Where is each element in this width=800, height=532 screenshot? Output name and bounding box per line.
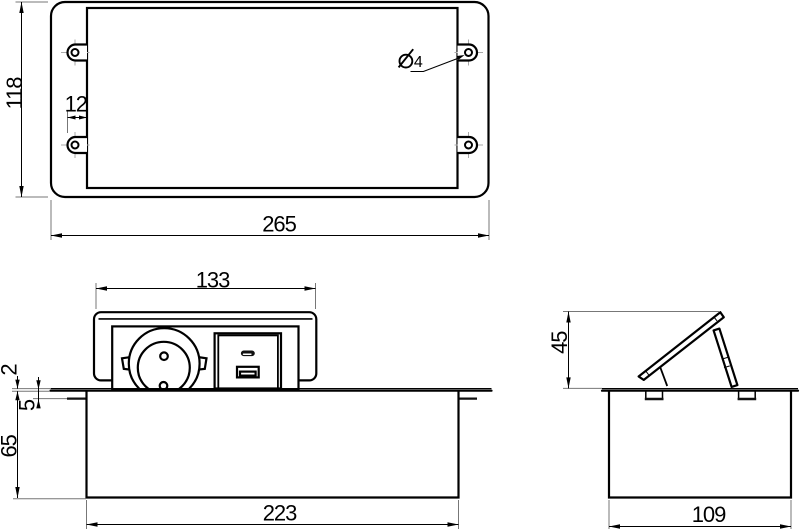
svg-text:223: 223: [263, 501, 297, 526]
svg-text:265: 265: [262, 212, 296, 237]
svg-text:45: 45: [547, 331, 572, 354]
svg-text:65: 65: [0, 434, 22, 457]
svg-text:133: 133: [196, 267, 230, 292]
svg-text:12: 12: [65, 92, 88, 117]
svg-text:118: 118: [2, 77, 27, 110]
svg-text:5: 5: [15, 399, 40, 411]
svg-text:4: 4: [414, 54, 423, 71]
svg-text:109: 109: [692, 502, 726, 527]
svg-text:2: 2: [0, 364, 22, 376]
